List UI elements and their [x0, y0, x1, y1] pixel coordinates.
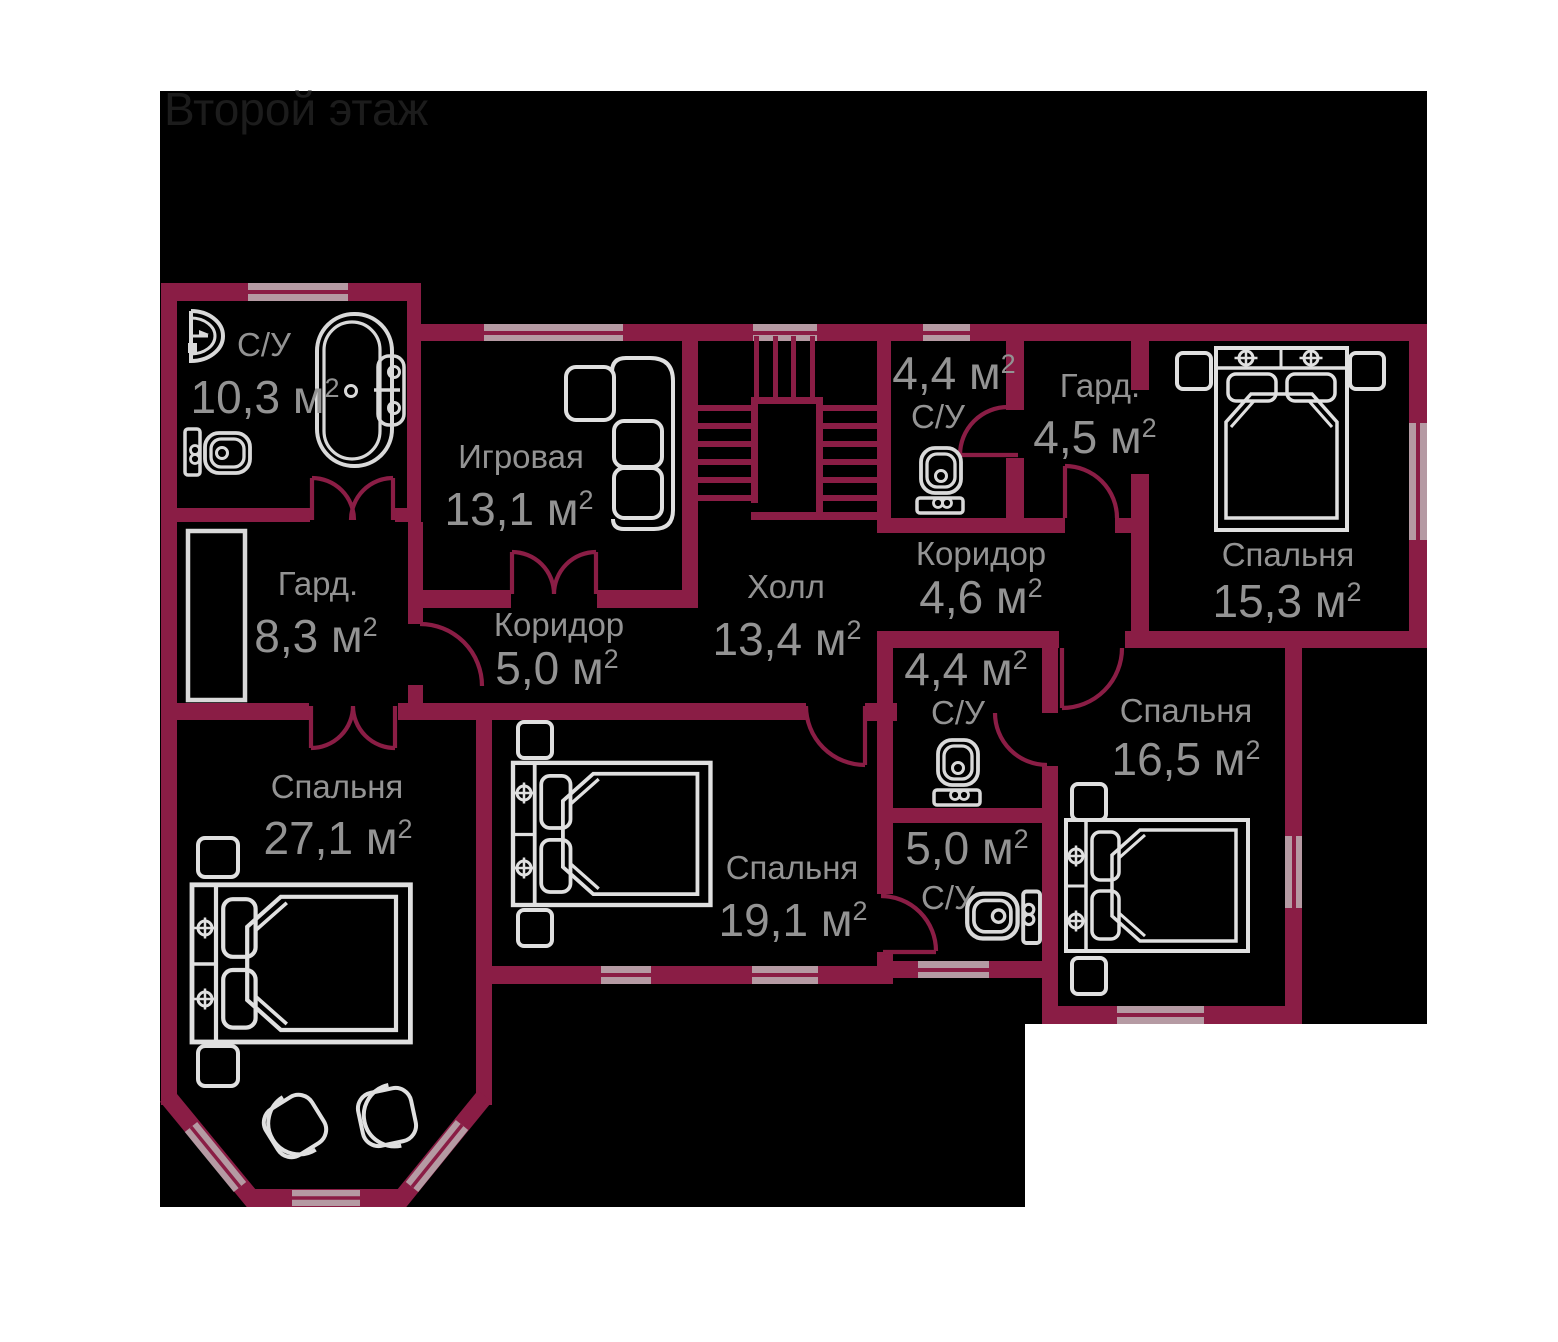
svg-text:С/У: С/У: [237, 326, 292, 363]
svg-text:Коридор: Коридор: [494, 606, 624, 643]
svg-text:Коридор: Коридор: [916, 535, 1046, 572]
svg-text:Игровая: Игровая: [458, 438, 584, 475]
svg-text:Гард.: Гард.: [278, 565, 358, 602]
svg-text:4,4 м2: 4,4 м2: [904, 643, 1027, 695]
svg-text:С/У: С/У: [911, 398, 966, 435]
svg-text:10,3 м2: 10,3 м2: [191, 371, 340, 423]
svg-text:15,3 м2: 15,3 м2: [1213, 575, 1362, 627]
svg-text:С/У: С/У: [921, 879, 976, 916]
svg-text:С/У: С/У: [931, 694, 986, 731]
svg-text:4,4 м2: 4,4 м2: [892, 347, 1015, 399]
svg-text:16,5 м2: 16,5 м2: [1112, 733, 1261, 785]
svg-text:4,5 м2: 4,5 м2: [1033, 411, 1156, 463]
svg-text:Холл: Холл: [747, 568, 825, 605]
svg-text:5,0 м2: 5,0 м2: [905, 822, 1028, 874]
svg-text:Второй этаж: Второй этаж: [164, 83, 429, 135]
svg-text:4,6 м2: 4,6 м2: [919, 571, 1042, 623]
svg-text:5,0 м2: 5,0 м2: [495, 642, 618, 694]
svg-text:Спальня: Спальня: [1222, 536, 1355, 573]
svg-text:13,4 м2: 13,4 м2: [713, 613, 862, 665]
svg-text:19,1 м2: 19,1 м2: [719, 894, 868, 946]
svg-text:Спальня: Спальня: [1120, 692, 1253, 729]
svg-text:27,1 м2: 27,1 м2: [264, 812, 413, 864]
svg-text:8,3 м2: 8,3 м2: [254, 610, 377, 662]
svg-text:Спальня: Спальня: [271, 768, 404, 805]
svg-text:Гард.: Гард.: [1060, 367, 1140, 404]
svg-text:13,1 м2: 13,1 м2: [445, 483, 594, 535]
svg-text:Спальня: Спальня: [726, 849, 859, 886]
